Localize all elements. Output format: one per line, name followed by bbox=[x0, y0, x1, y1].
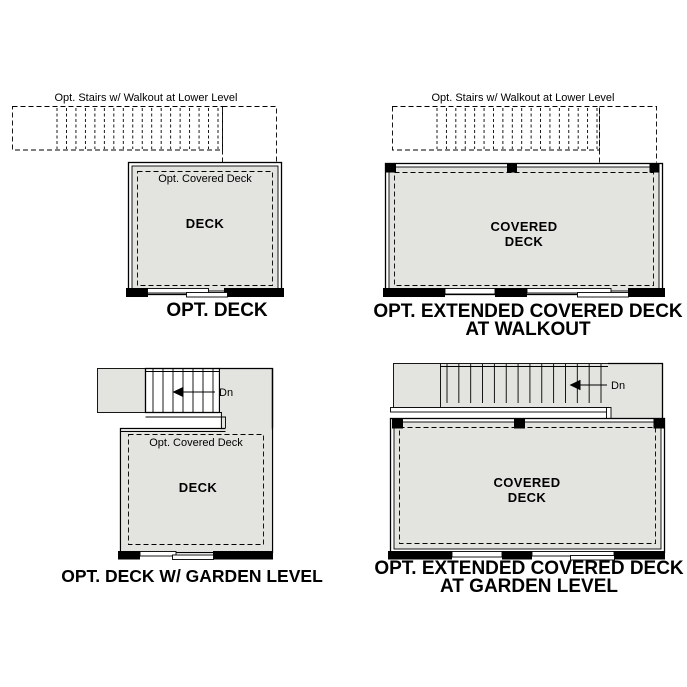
down-label: Dn bbox=[219, 387, 233, 399]
deck-structure: COVERED DECK bbox=[388, 419, 665, 561]
stair-lower-wall bbox=[391, 408, 610, 413]
house-wall bbox=[126, 288, 284, 297]
stair-treads bbox=[437, 108, 597, 149]
covered-deck-label: Opt. Covered Deck bbox=[158, 173, 252, 185]
stairs: Dn bbox=[98, 369, 273, 431]
wall-segment bbox=[213, 551, 273, 560]
deck-post bbox=[650, 164, 660, 173]
panel-title: OPT. DECK bbox=[166, 300, 268, 321]
door-panel bbox=[140, 552, 176, 557]
deck-post bbox=[392, 419, 403, 429]
panel-title-line2: AT WALKOUT bbox=[465, 319, 591, 340]
stair-treads bbox=[57, 108, 218, 149]
wall-segment bbox=[628, 288, 665, 297]
door-panel bbox=[173, 555, 214, 560]
panel-extended-walkout: Opt. Stairs w/ Walkout at Lower Level CO… bbox=[373, 92, 683, 340]
deck-structure: Opt. Covered Deck DECK bbox=[126, 163, 284, 298]
optional-stairs-dashed bbox=[13, 107, 277, 163]
panel-deck-garden: Dn Opt. Covered Deck DECK OPT. DECK W/ G… bbox=[61, 369, 323, 587]
stair-landing-outline bbox=[223, 107, 277, 163]
floor-plan-page: Opt. Stairs w/ Walkout at Lower Level Op… bbox=[0, 0, 687, 687]
door-panel bbox=[187, 293, 228, 298]
window bbox=[445, 289, 495, 295]
deck-room-label-line1: COVERED bbox=[493, 475, 560, 490]
stairs: Dn bbox=[391, 364, 663, 420]
deck-room-label: DECK bbox=[179, 480, 218, 495]
stair-lower-wall bbox=[146, 413, 226, 429]
wall-segment bbox=[224, 288, 284, 297]
deck-post bbox=[654, 419, 665, 429]
optional-stairs-dashed bbox=[393, 107, 657, 163]
wall-connector bbox=[607, 408, 612, 419]
deck-room-label-line2: DECK bbox=[505, 234, 544, 249]
panel-opt-deck: Opt. Stairs w/ Walkout at Lower Level Op… bbox=[13, 92, 285, 321]
covered-deck-label: Opt. Covered Deck bbox=[149, 437, 243, 449]
deck-post bbox=[514, 419, 525, 429]
panel-extended-garden: Dn COVERED DECK OPT. EXTENDED COVERED bbox=[374, 364, 684, 598]
door-panel bbox=[578, 293, 629, 298]
deck-room-label-line1: COVERED bbox=[490, 219, 557, 234]
wall-segment bbox=[383, 288, 445, 297]
stair-landing bbox=[98, 369, 146, 413]
wall-segment bbox=[118, 551, 140, 560]
panel-title: OPT. DECK W/ GARDEN LEVEL bbox=[61, 566, 323, 586]
stair-landing-outline bbox=[600, 107, 657, 163]
wall-segment bbox=[495, 288, 527, 297]
down-label: Dn bbox=[611, 380, 625, 392]
floor-plan-canvas: Opt. Stairs w/ Walkout at Lower Level Op… bbox=[0, 0, 687, 687]
stairs-label: Opt. Stairs w/ Walkout at Lower Level bbox=[55, 92, 238, 104]
deck-room-label-line2: DECK bbox=[508, 490, 547, 505]
window bbox=[452, 552, 502, 558]
deck-room-label: DECK bbox=[186, 216, 225, 231]
panel-title-line2: AT GARDEN LEVEL bbox=[440, 576, 618, 597]
wall-segment bbox=[126, 288, 148, 297]
stairs-label: Opt. Stairs w/ Walkout at Lower Level bbox=[432, 92, 615, 104]
deck-structure: COVERED DECK bbox=[383, 164, 665, 298]
deck-post bbox=[507, 164, 517, 173]
stair-run-outline bbox=[13, 107, 223, 151]
deck-post bbox=[386, 164, 396, 173]
stair-upper-landing bbox=[220, 369, 272, 430]
